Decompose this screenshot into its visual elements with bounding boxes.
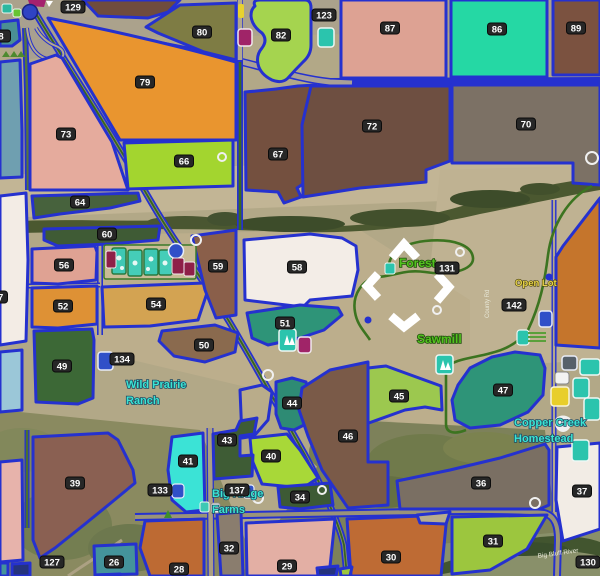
svg-text:Copper Creek: Copper Creek: [514, 417, 587, 429]
svg-text:29: 29: [282, 562, 293, 573]
svg-text:Ranch: Ranch: [126, 395, 160, 407]
svg-text:37: 37: [577, 487, 588, 498]
svg-text:123: 123: [316, 11, 332, 22]
svg-text:46: 46: [343, 432, 354, 443]
svg-text:39: 39: [70, 479, 81, 490]
svg-text:86: 86: [492, 25, 503, 36]
svg-text:44: 44: [287, 399, 298, 410]
svg-text:Sawmill: Sawmill: [417, 332, 462, 346]
svg-text:28: 28: [174, 565, 185, 576]
svg-text:51: 51: [280, 319, 291, 330]
svg-text:47: 47: [498, 386, 509, 397]
svg-text:Farms: Farms: [212, 504, 245, 516]
svg-text:60: 60: [102, 230, 113, 241]
svg-text:66: 66: [179, 157, 190, 168]
svg-text:59: 59: [213, 262, 224, 273]
svg-text:79: 79: [140, 78, 151, 89]
svg-text:8: 8: [0, 32, 4, 43]
svg-text:134: 134: [114, 355, 131, 366]
svg-text:Forest: Forest: [399, 256, 436, 270]
svg-text:80: 80: [197, 28, 208, 39]
svg-text:50: 50: [199, 341, 210, 352]
svg-text:142: 142: [506, 301, 522, 312]
svg-text:87: 87: [385, 24, 396, 35]
svg-text:64: 64: [75, 198, 86, 209]
svg-text:56: 56: [59, 261, 70, 272]
svg-text:130: 130: [580, 558, 596, 569]
svg-text:40: 40: [266, 452, 277, 463]
svg-text:31: 31: [488, 537, 499, 548]
svg-text:43: 43: [222, 436, 233, 447]
svg-text:32: 32: [224, 544, 235, 555]
svg-text:73: 73: [61, 130, 72, 141]
svg-text:45: 45: [394, 392, 405, 403]
svg-text:Open Lot: Open Lot: [515, 278, 558, 289]
svg-text:137: 137: [229, 486, 245, 497]
svg-text:127: 127: [44, 558, 60, 569]
svg-text:34: 34: [295, 493, 306, 504]
svg-text:129: 129: [65, 3, 81, 14]
svg-text:133: 133: [152, 486, 168, 497]
svg-text:Wild Prairie: Wild Prairie: [126, 379, 186, 391]
svg-text:54: 54: [151, 300, 162, 311]
svg-text:57: 57: [0, 293, 3, 304]
svg-text:131: 131: [439, 264, 456, 275]
svg-text:Homestead: Homestead: [514, 433, 573, 445]
svg-text:41: 41: [183, 457, 194, 468]
svg-text:49: 49: [57, 362, 68, 373]
svg-text:82: 82: [276, 31, 287, 42]
svg-text:72: 72: [367, 122, 378, 133]
svg-text:67: 67: [273, 150, 284, 161]
svg-text:58: 58: [292, 263, 303, 274]
svg-text:County Rd: County Rd: [485, 290, 491, 318]
svg-text:52: 52: [58, 302, 69, 313]
svg-text:30: 30: [386, 553, 397, 564]
svg-text:70: 70: [521, 120, 532, 131]
svg-text:36: 36: [476, 479, 487, 490]
svg-text:89: 89: [571, 24, 582, 35]
svg-text:26: 26: [109, 558, 120, 569]
